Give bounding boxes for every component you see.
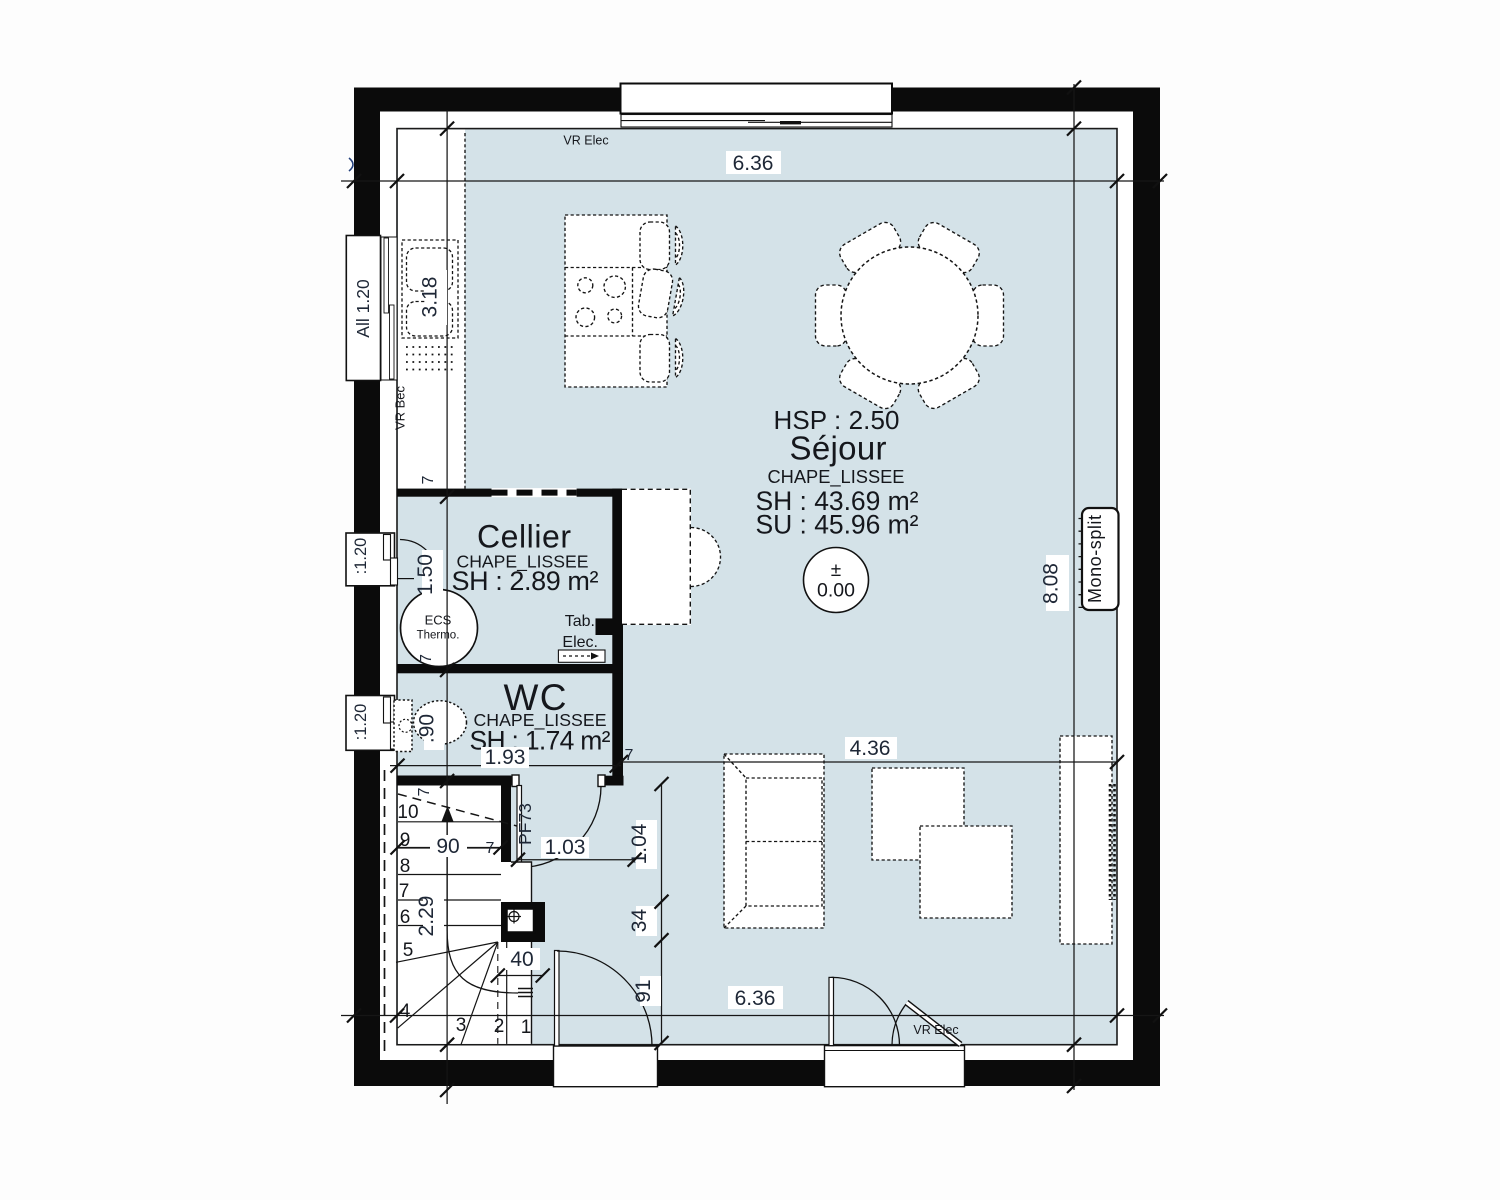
svg-text:VR Elec: VR Elec (563, 134, 608, 148)
svg-text:4.36: 4.36 (850, 737, 891, 760)
svg-text:8.08: 8.08 (1040, 563, 1063, 604)
svg-text:1.50: 1.50 (414, 554, 437, 595)
svg-text:Séjour: Séjour (790, 430, 887, 467)
svg-text:VR Elec: VR Elec (913, 1023, 958, 1037)
svg-text:91: 91 (632, 979, 655, 1002)
svg-text:PF73: PF73 (515, 803, 535, 845)
svg-text:10: 10 (397, 802, 418, 823)
svg-text:SH : 2.89 m²: SH : 2.89 m² (452, 566, 599, 596)
svg-text:7: 7 (399, 881, 410, 902)
svg-text:Cellier: Cellier (477, 519, 571, 555)
svg-text:6.36: 6.36 (733, 152, 774, 175)
svg-text:Thermo.: Thermo. (417, 630, 460, 642)
svg-text:All 1.20: All 1.20 (353, 279, 373, 338)
svg-text:6: 6 (400, 907, 411, 928)
svg-text:2.29: 2.29 (415, 896, 438, 937)
svg-text:Tab.: Tab. (565, 613, 595, 630)
svg-text::1.20: :1.20 (352, 704, 370, 741)
svg-text:40: 40 (510, 948, 533, 971)
svg-text:0.00: 0.00 (817, 580, 855, 602)
svg-text:VR Bec: VR Bec (393, 385, 408, 430)
svg-text:7: 7 (416, 787, 433, 796)
svg-text:±: ± (831, 560, 841, 581)
svg-text:1: 1 (521, 1017, 532, 1038)
svg-text:Elec.: Elec. (562, 634, 598, 651)
svg-text:1.04: 1.04 (628, 823, 651, 864)
svg-text:.90: .90 (416, 714, 439, 743)
svg-text:7: 7 (420, 475, 437, 484)
svg-text::1.20: :1.20 (352, 538, 370, 575)
svg-text:SU : 45.96 m²: SU : 45.96 m² (756, 510, 919, 540)
svg-text:5: 5 (403, 940, 414, 961)
svg-text:1.93: 1.93 (485, 746, 526, 769)
svg-text:CHAPE_LISSEE: CHAPE_LISSEE (768, 466, 905, 488)
svg-text:Mono-split: Mono-split (1085, 515, 1105, 603)
svg-text:90: 90 (436, 835, 459, 858)
svg-text:7: 7 (418, 654, 435, 663)
svg-text:7: 7 (486, 840, 495, 857)
svg-text:8: 8 (400, 856, 411, 877)
svg-text:3.18: 3.18 (419, 277, 442, 318)
svg-text:1.03: 1.03 (545, 836, 586, 859)
svg-text:6.36: 6.36 (735, 987, 776, 1010)
svg-text:3: 3 (456, 1015, 467, 1036)
svg-text:2: 2 (494, 1016, 505, 1037)
svg-text:7: 7 (625, 747, 634, 764)
svg-text:34: 34 (628, 909, 651, 933)
